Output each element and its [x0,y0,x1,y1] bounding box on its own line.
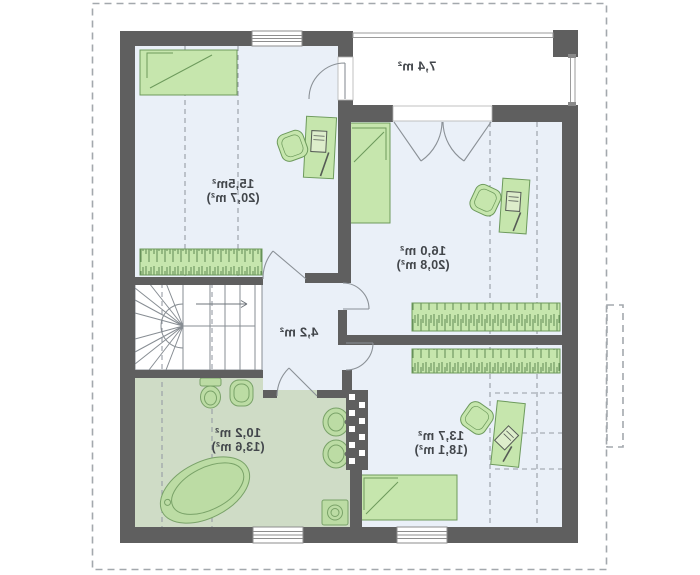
desk-icon [491,401,526,468]
area-floor: 4,2 m² [280,325,319,340]
bidet-icon [230,380,253,406]
balcony-door-threshold [393,106,492,121]
room-label-bathroom: 10,2 m² (13,6 m²) [211,425,264,455]
wardrobe-icon [412,303,560,331]
room-label-bedroom-right: 16,0 m² (20,8 m²) [396,243,449,273]
room-label-bedroom-top-left: 15,5m² (20,7 m²) [206,176,259,206]
desk-icon [499,178,530,234]
bed-icon [350,123,390,223]
area-floor: 10,2 m² [215,425,261,440]
chimney-icon [607,305,623,447]
floor-plan: 15,5m² (20,7 m²) 7,4 m² 16,0 m² (20,8 m²… [0,0,700,575]
washing-machine-icon [322,500,348,525]
wardrobe-icon [140,249,262,275]
balcony-floor [353,37,572,105]
area-total: (13,6 m²) [211,440,264,455]
room-label-hall: 4,2 m² [280,325,319,340]
area-floor: 13,7 m² [418,428,464,443]
laptop-icon [506,191,521,211]
area-total: (18,1 m²) [414,443,467,458]
sink-icon [323,408,349,436]
area-floor: 7,4 m² [398,59,437,74]
floor-plan-drawing [0,0,700,575]
room-label-balcony: 7,4 m² [398,59,437,74]
window-icon [397,527,447,543]
sink-icon [323,440,349,468]
laptop-icon [311,131,327,153]
wardrobe-icon [412,349,560,373]
area-floor: 16,0 m² [400,243,446,258]
window-icon [253,527,303,543]
toilet-icon [200,378,221,408]
desk-icon [303,116,336,178]
window-icon [252,31,302,46]
area-floor: 15,5m² [212,176,254,191]
bed-icon [358,475,457,520]
room-label-bedroom-bottom: 13,7 m² (18,1 m²) [414,428,467,458]
bed-icon [140,50,237,95]
area-total: (20,8 m²) [396,258,449,273]
area-total: (20,7 m²) [206,191,259,206]
